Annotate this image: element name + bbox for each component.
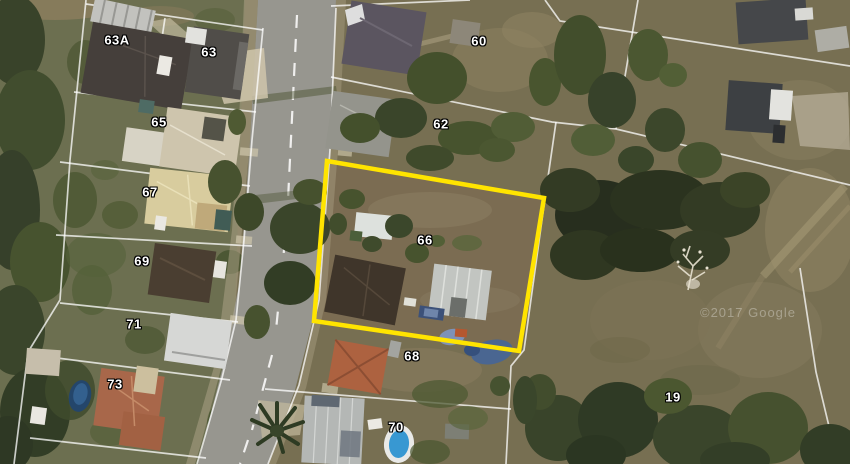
shed-73 bbox=[133, 366, 158, 395]
house-70 bbox=[301, 394, 364, 464]
map-scene bbox=[0, 0, 850, 464]
shed-60 bbox=[449, 19, 480, 47]
white-object-66 bbox=[404, 297, 417, 307]
house-63 bbox=[185, 26, 250, 99]
car-white-67 bbox=[154, 215, 167, 230]
car-white-69 bbox=[213, 260, 227, 279]
car-white-73 bbox=[30, 406, 47, 425]
house-68 bbox=[327, 340, 388, 395]
orange-object-68 bbox=[455, 328, 468, 337]
van-white-70 bbox=[367, 418, 382, 430]
house-northeast-1 bbox=[736, 0, 814, 44]
shed-neighbor-bottom-left bbox=[25, 348, 61, 376]
car-dark-ne bbox=[772, 125, 785, 144]
shed-67-teal bbox=[214, 209, 232, 231]
shed-65-teal bbox=[138, 99, 155, 114]
house-71 bbox=[164, 313, 232, 369]
house-69 bbox=[148, 243, 217, 303]
satellite-map[interactable]: 63A636567697173606266687019 ©2017 Google bbox=[0, 0, 850, 464]
